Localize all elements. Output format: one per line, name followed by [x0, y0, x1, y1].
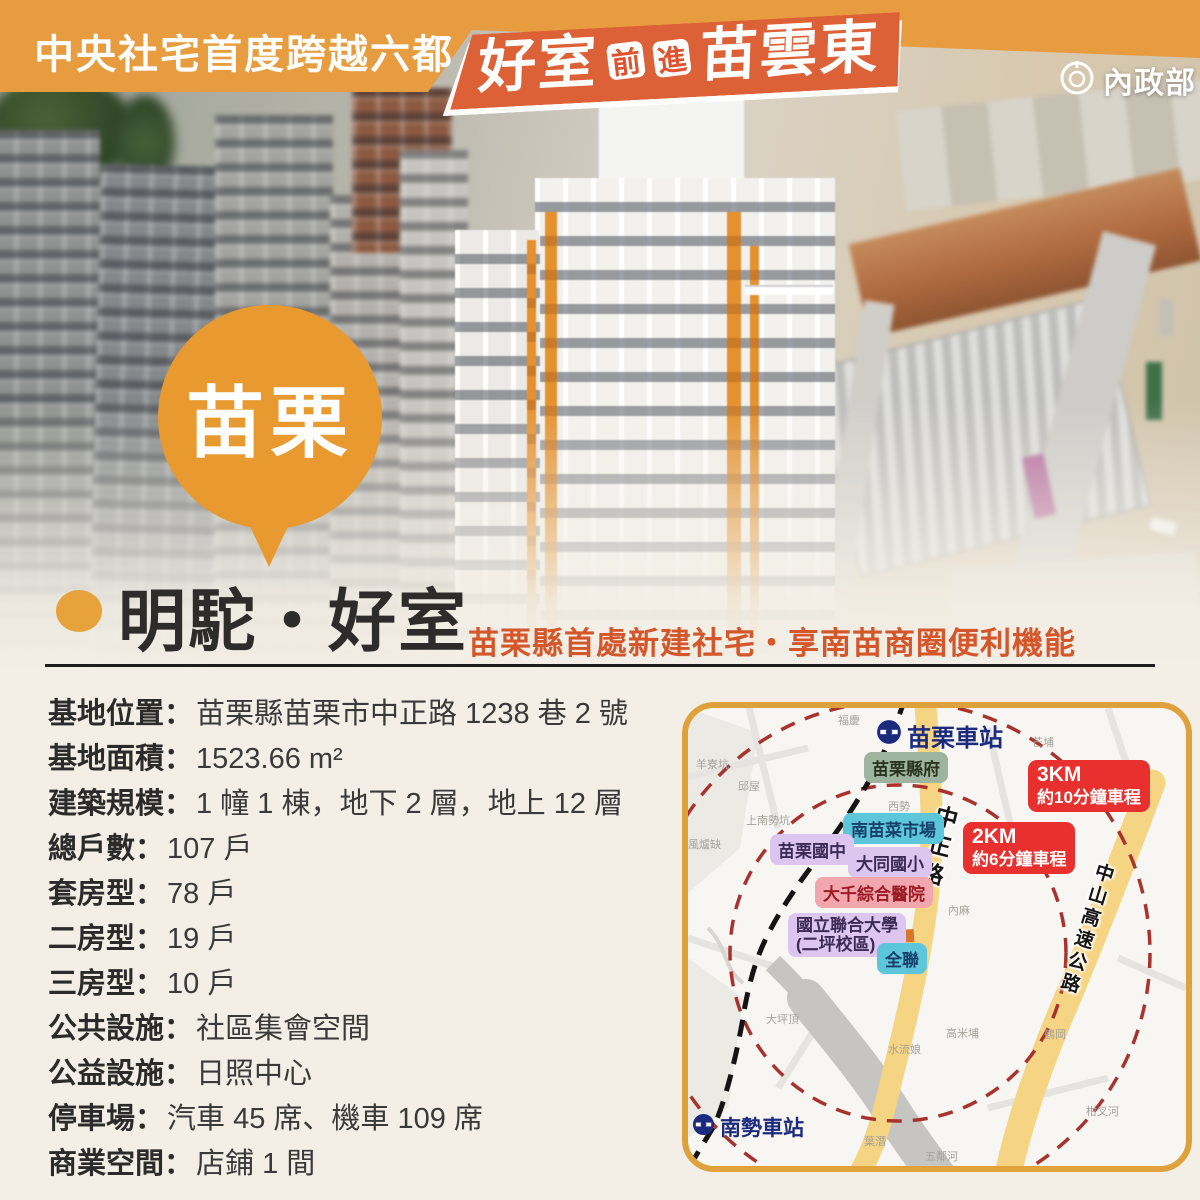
- project-subtitle: 苗栗縣首處新建社宅・享南苗商圈便利機能: [468, 618, 1076, 663]
- divider-line: [45, 664, 1155, 667]
- poi-county-government: 苗栗縣府: [864, 752, 948, 783]
- city-badge-label: 苗栗: [158, 305, 382, 529]
- poi-miaoli-junior-high: 苗栗國中: [770, 834, 854, 865]
- details-list: 基地位置：苗栗縣苗栗市中正路 1238 巷 2 號 基地面積：1523.66 m…: [48, 690, 680, 1185]
- map-minor-label: 風爐缺: [688, 836, 721, 852]
- map-minor-label: 大坪頂: [766, 1011, 799, 1027]
- map-minor-label: 邱屋: [738, 778, 760, 794]
- detail-row-total-units: 總戶數：107 戶: [48, 825, 680, 870]
- main-title-mid2: 進: [652, 38, 692, 78]
- map-minor-label: 高米埔: [946, 1025, 979, 1041]
- poi-datong-elementary: 大同國小: [848, 847, 932, 878]
- detail-row-studio-units: 套房型：78 戶: [48, 870, 680, 915]
- housing-poster: 中央社宅首度跨越六都 好室 前 進 苗雲東 內政部 苗栗 明駝・好室 苗栗縣首處…: [0, 0, 1200, 1200]
- detail-row-site-area: 基地面積：1523.66 m²: [48, 735, 680, 780]
- banner-slogan: 中央社宅首度跨越六都: [34, 22, 454, 80]
- poi-pxmart: 全聯: [877, 943, 927, 974]
- map-minor-label: 鶴岡: [1044, 1026, 1066, 1042]
- map-minor-label: 福慶: [838, 712, 860, 728]
- map-minor-label: 芒埔: [1032, 734, 1054, 750]
- map-station-nanshi: 南勢車站: [692, 1112, 804, 1142]
- detail-row-site-location: 基地位置：苗栗縣苗栗市中正路 1238 巷 2 號: [48, 690, 680, 735]
- map-minor-label: 上南勢坑: [746, 812, 790, 828]
- railway-station-icon: [876, 719, 902, 752]
- map-minor-label: 五鄰河: [925, 1148, 958, 1164]
- railway-station-icon: [692, 1113, 715, 1142]
- detail-row-parking: 停車場：汽車 45 席、機車 109 席: [48, 1095, 680, 1140]
- detail-row-3br-units: 三房型：10 戶: [48, 960, 680, 1005]
- map-station-miaoli: 苗栗車站: [876, 718, 1003, 753]
- location-map: 羊寮坑 邱屋 福慶 芒埔 西勢 上南勢坑 風爐缺 內麻 大坪頂 水流娘 高米埔 …: [682, 702, 1192, 1172]
- rooftop-box: [598, 98, 745, 185]
- detail-row-building-scale: 建築規模：1 幢 1 棟，地下 2 層，地上 12 層: [48, 780, 680, 825]
- main-title-mid1: 前: [606, 41, 646, 81]
- detail-row-public-facility: 公共設施：社區集會空間: [48, 1005, 680, 1050]
- moi-logo: 內政部: [1058, 58, 1196, 102]
- detail-row-welfare-facility: 公益設施：日照中心: [48, 1050, 680, 1095]
- map-minor-label: 內麻: [948, 902, 970, 918]
- title-bullet-dot: [56, 590, 102, 632]
- project-title: 明駝・好室: [118, 566, 468, 665]
- moi-logo-icon: [1058, 59, 1096, 102]
- distance-badge-2km: 2KM 約6分鐘車程: [963, 822, 1075, 874]
- map-minor-label: 柑叉河: [1086, 1103, 1119, 1119]
- roof-terrace-railing: [745, 285, 833, 295]
- map-minor-label: 羊寮坑: [696, 756, 729, 772]
- detail-row-2br-units: 二房型：19 戶: [48, 915, 680, 960]
- poi-dachien-hospital: 大千綜合醫院: [815, 877, 933, 908]
- poi-nanmiao-market: 南苗菜市場: [843, 813, 944, 844]
- map-minor-label: 葉潛: [864, 1133, 886, 1149]
- main-title-part1: 好室: [477, 30, 599, 100]
- map-minor-label: 水流娘: [888, 1041, 921, 1057]
- distance-badge-3km: 3KM 約10分鐘車程: [1028, 760, 1150, 812]
- moi-logo-text: 內政部: [1103, 58, 1196, 102]
- map-minor-label: 西勢: [888, 798, 910, 814]
- detail-row-commercial-space: 商業空間：店鋪 1 間: [48, 1140, 680, 1185]
- main-title-part2: 苗雲東: [699, 15, 881, 89]
